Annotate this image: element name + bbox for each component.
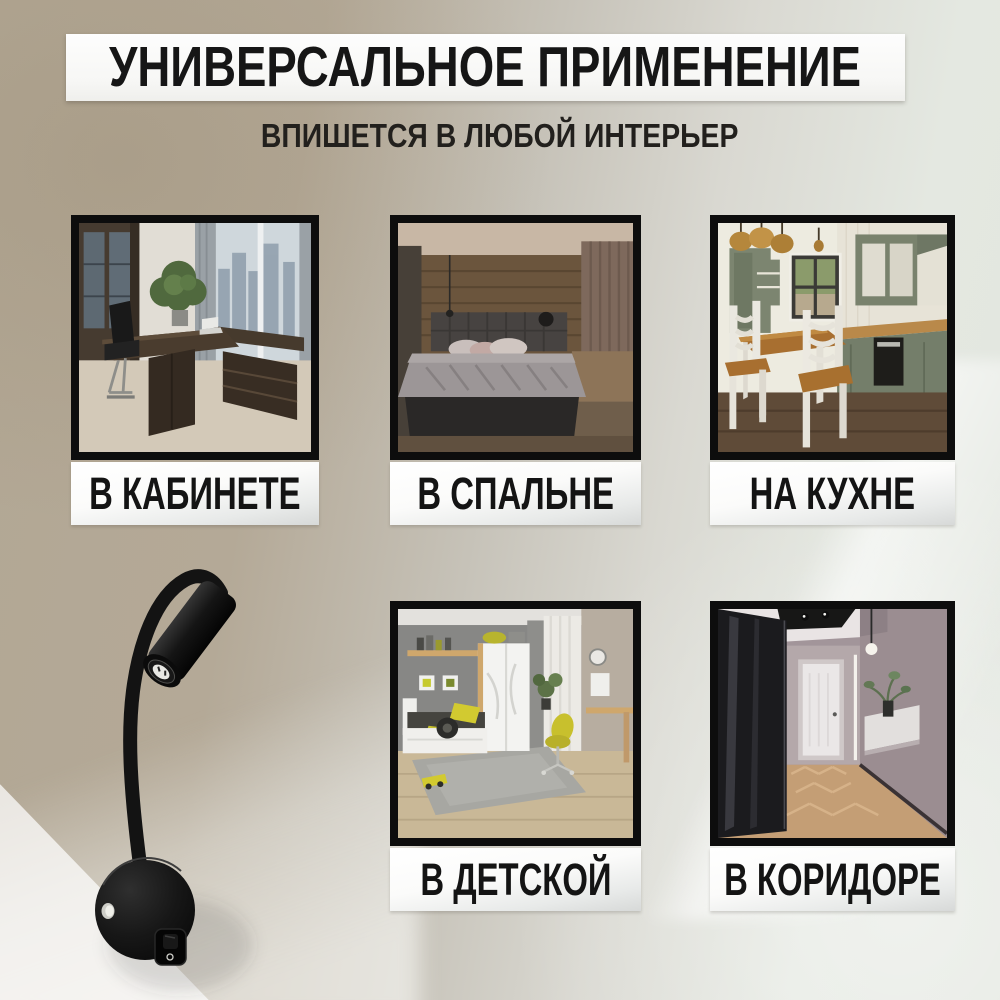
tile-label-text: НА КУХНЕ <box>750 471 915 516</box>
product-lamp-photo <box>55 553 315 1000</box>
black-gooseneck-wall-lamp <box>55 553 315 1000</box>
usage-tile-hallway: В КОРИДОРЕ <box>710 601 955 911</box>
office-room-photo <box>79 223 311 452</box>
page-subtitle-text: ВПИШЕТСЯ В ЛЮБОЙ ИНТЕРЬЕР <box>261 117 739 155</box>
kitchen-photo-frame <box>710 215 955 460</box>
promo-page: УНИВЕРСАЛЬНОЕ ПРИМЕНЕНИЕ ВПИШЕТСЯ В ЛЮБО… <box>0 0 1000 1000</box>
office-photo-frame <box>71 215 319 460</box>
hallway-photo-frame <box>710 601 955 846</box>
tile-label-bedroom: В СПАЛЬНЕ <box>390 462 641 525</box>
page-subtitle: ВПИШЕТСЯ В ЛЮБОЙ ИНТЕРЬЕР <box>0 113 1000 159</box>
hallway-photo <box>718 609 947 838</box>
kitchen-photo <box>718 223 947 452</box>
title-banner: УНИВЕРСАЛЬНОЕ ПРИМЕНЕНИЕ <box>66 34 905 101</box>
tile-label-office: В КАБИНЕТЕ <box>71 462 319 525</box>
bedroom-photo <box>398 223 633 452</box>
tile-label-text: В СПАЛЬНЕ <box>417 471 614 516</box>
page-title: УНИВЕРСАЛЬНОЕ ПРИМЕНЕНИЕ <box>15 39 955 96</box>
usage-tile-kitchen: НА КУХНЕ <box>710 215 955 525</box>
lamp-power-switch <box>155 929 186 965</box>
tile-label-text: В ДЕТСКОЙ <box>420 857 611 902</box>
tile-label-kids-room: В ДЕТСКОЙ <box>390 848 641 911</box>
tile-label-kitchen: НА КУХНЕ <box>710 462 955 525</box>
tile-label-text: В КАБИНЕТЕ <box>89 471 300 516</box>
bedroom-photo-frame <box>390 215 641 460</box>
usage-tile-bedroom: В СПАЛЬНЕ <box>390 215 641 525</box>
usage-tile-office: В КАБИНЕТЕ <box>71 215 319 525</box>
tile-label-hallway: В КОРИДОРЕ <box>710 848 955 911</box>
tile-label-text: В КОРИДОРЕ <box>724 857 941 902</box>
usage-tile-kids-room: В ДЕТСКОЙ <box>390 601 641 911</box>
page-title-text: УНИВЕРСАЛЬНОЕ ПРИМЕНЕНИЕ <box>109 39 861 96</box>
kids-room-photo <box>398 609 633 838</box>
kids-room-photo-frame <box>390 601 641 846</box>
